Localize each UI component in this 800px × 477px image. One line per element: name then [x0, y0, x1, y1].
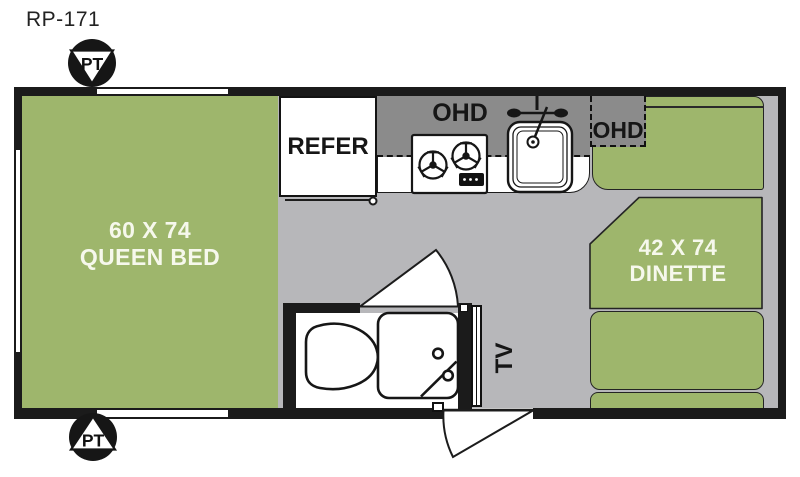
sink-icon [508, 122, 572, 192]
dinette-size-label: 42 X 74 [639, 235, 718, 261]
stove-icon [412, 135, 487, 193]
bed-size-label: 60 X 74 [109, 217, 191, 244]
entry-door-swing-icon [443, 411, 533, 458]
propane-tank-rear-icon: PT [69, 413, 117, 461]
propane-front-label: PT [81, 54, 104, 74]
dinette-label: 42 X 74 DINETTE [592, 205, 764, 317]
fridge-door-swing-icon [285, 198, 377, 205]
propane-tank-front-icon: PT [68, 39, 116, 87]
toilet-icon [306, 324, 378, 389]
bathroom-door-swing-icon [360, 250, 458, 307]
propane-rear-label: PT [82, 431, 105, 451]
dinette-name-label: DINETTE [630, 261, 727, 287]
floorplan-canvas: RP-171 REFER OHD OHD TV [0, 0, 800, 477]
queen-bed-label: 60 X 74 QUEEN BED [22, 88, 278, 400]
bed-name-label: QUEEN BED [80, 244, 220, 271]
shower-icon [378, 313, 458, 398]
